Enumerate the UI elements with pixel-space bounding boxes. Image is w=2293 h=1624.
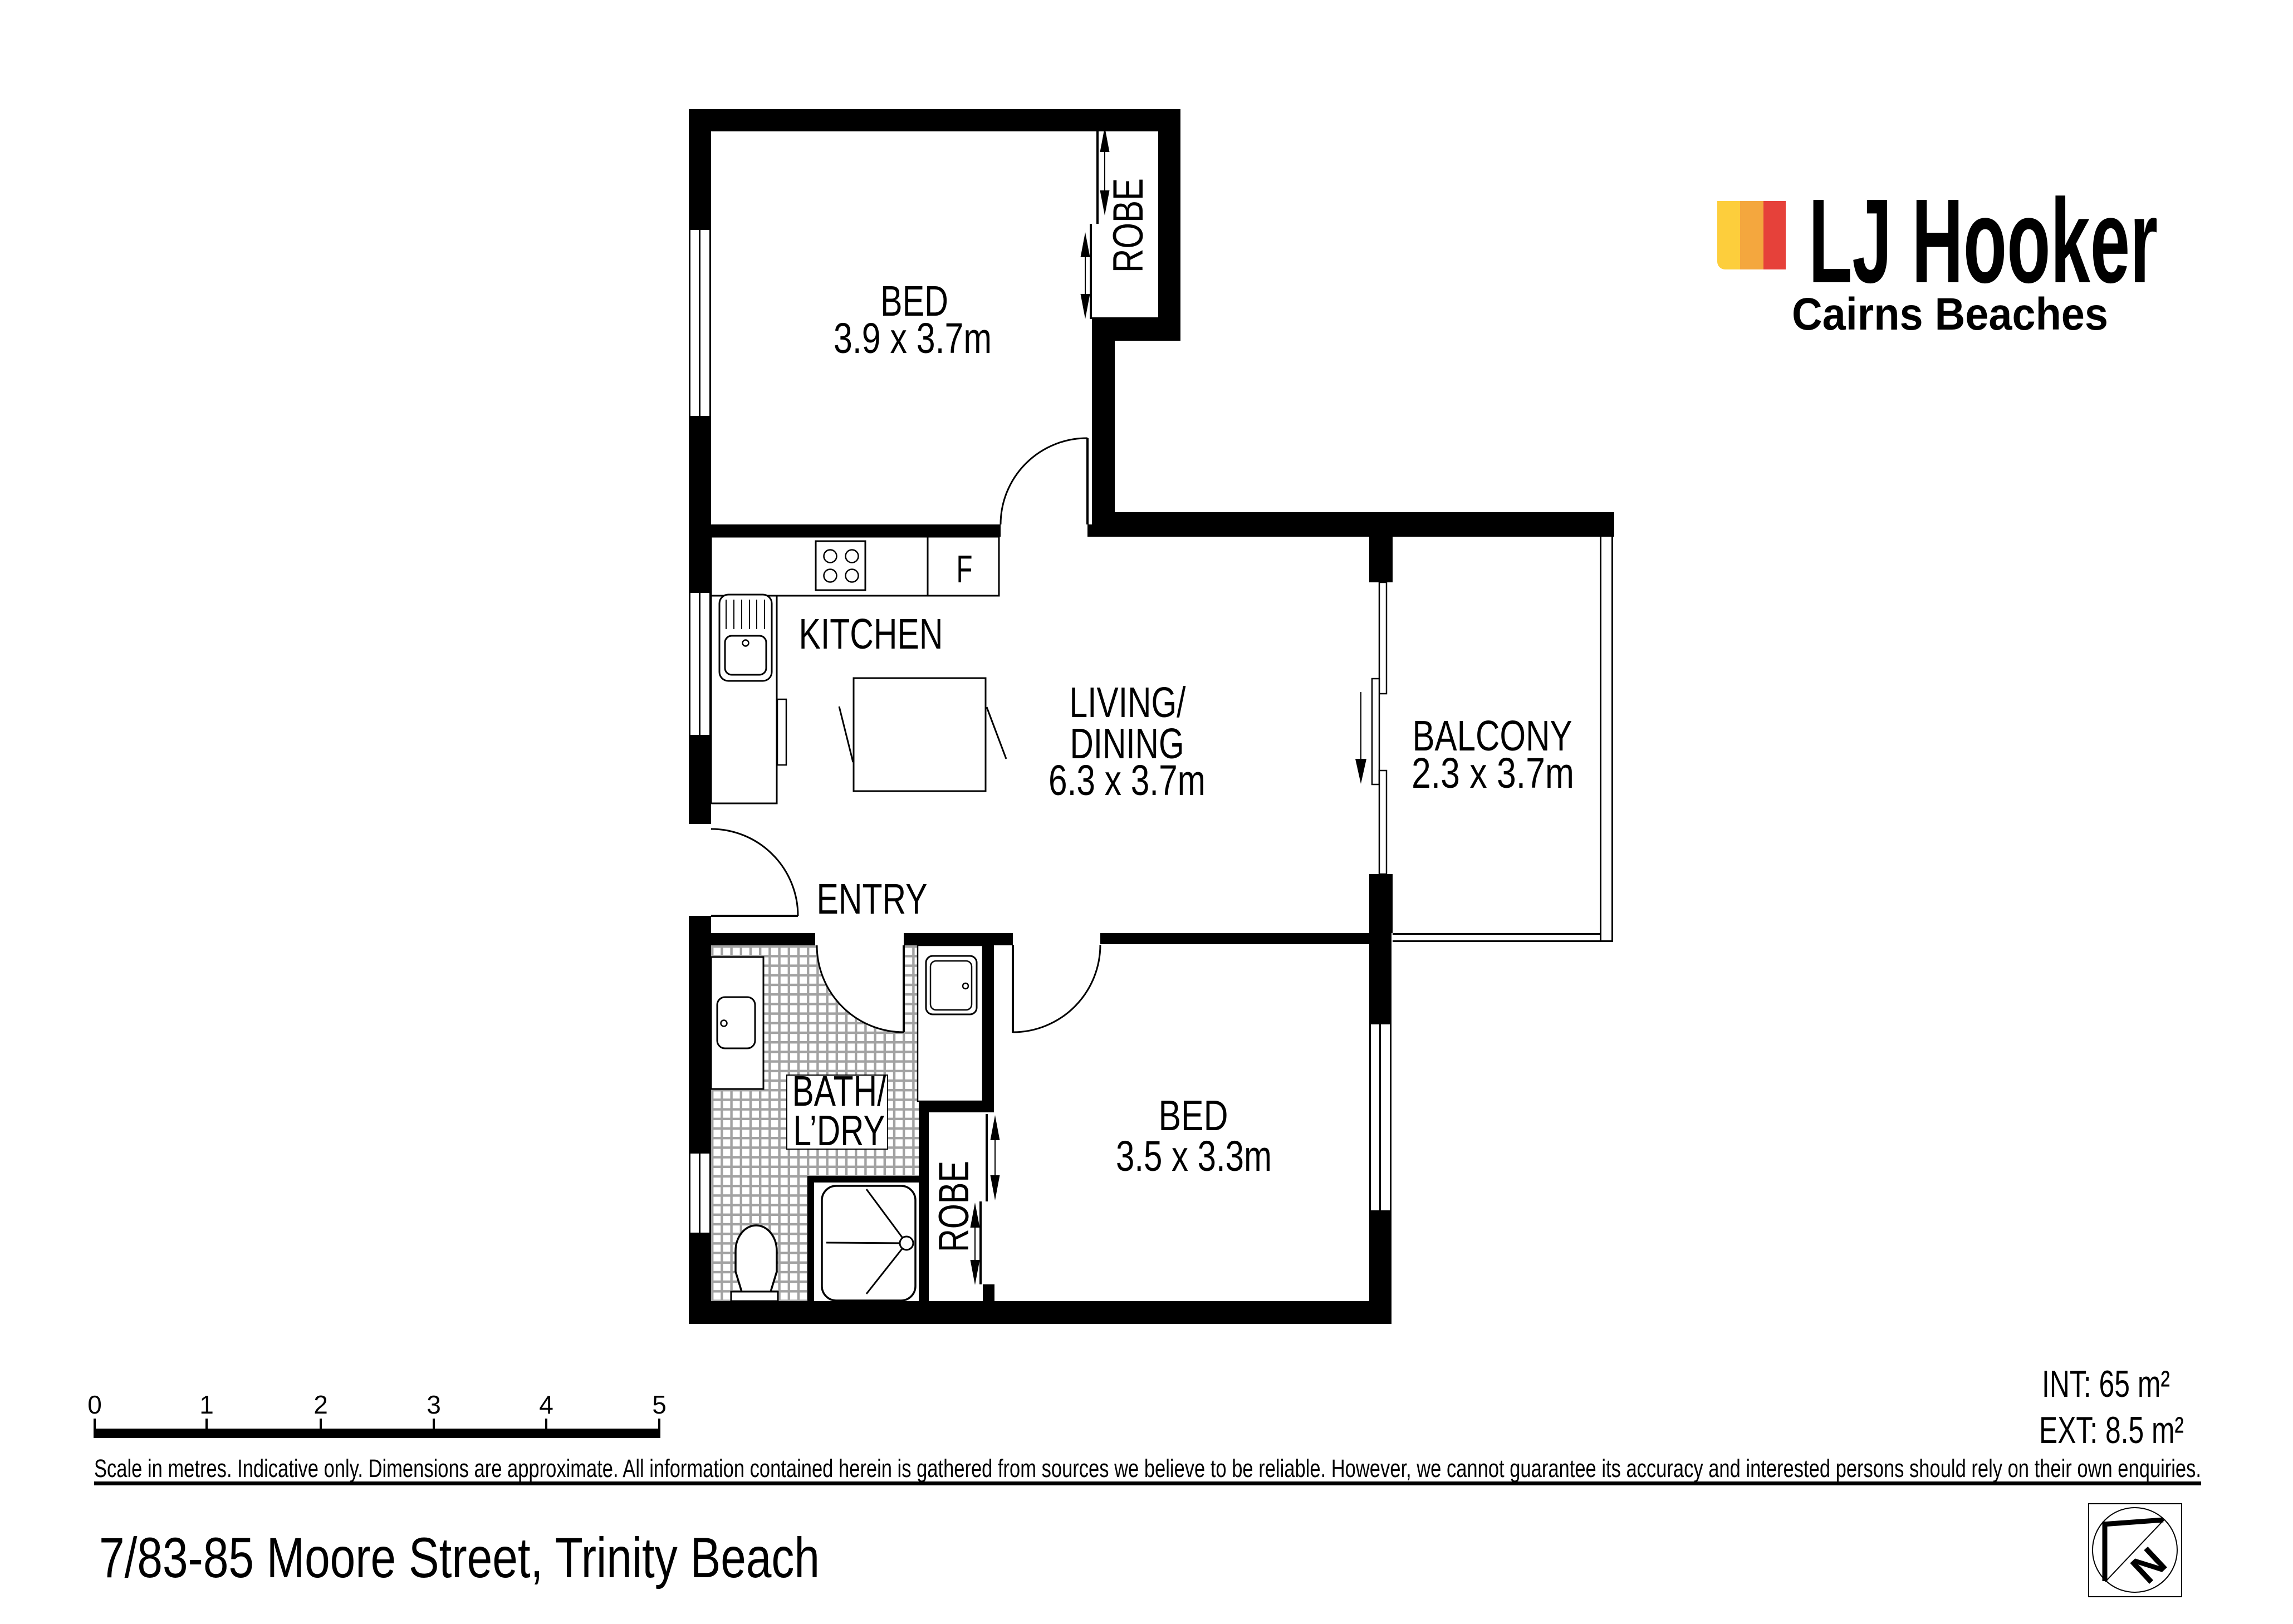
svg-text:3.9 x 3.7m: 3.9 x 3.7m [834, 315, 992, 362]
svg-text:3.5 x 3.3m: 3.5 x 3.3m [1116, 1132, 1272, 1180]
svg-text:EXT: 8.5 m²: EXT: 8.5 m² [2039, 1409, 2184, 1451]
svg-text:LJ Hooker: LJ Hooker [1809, 174, 2158, 308]
svg-text:2: 2 [313, 1390, 328, 1419]
svg-text:KITCHEN: KITCHEN [799, 610, 943, 658]
svg-text:Scale in metres. Indicative on: Scale in metres. Indicative only. Dimens… [94, 1454, 2201, 1483]
svg-text:1: 1 [199, 1390, 214, 1419]
svg-text:7/83-85 Moore Street, Trinity: 7/83-85 Moore Street, Trinity Beach [99, 1526, 820, 1589]
svg-text:INT: 65 m²: INT: 65 m² [2042, 1363, 2170, 1405]
svg-text:3: 3 [427, 1390, 441, 1419]
svg-text:6.3 x 3.7m: 6.3 x 3.7m [1048, 757, 1206, 804]
svg-text:ROBE: ROBE [1105, 178, 1152, 273]
svg-text:2.3 x 3.7m: 2.3 x 3.7m [1412, 749, 1574, 797]
svg-text:0: 0 [87, 1390, 102, 1419]
svg-text:ENTRY: ENTRY [817, 875, 928, 923]
svg-text:4: 4 [539, 1390, 553, 1419]
svg-text:F: F [957, 547, 973, 591]
svg-text:Cairns Beaches: Cairns Beaches [1792, 289, 2108, 340]
svg-text:L’DRY: L’DRY [793, 1107, 885, 1155]
svg-text:ROBE: ROBE [930, 1161, 978, 1252]
svg-text:5: 5 [652, 1390, 667, 1419]
